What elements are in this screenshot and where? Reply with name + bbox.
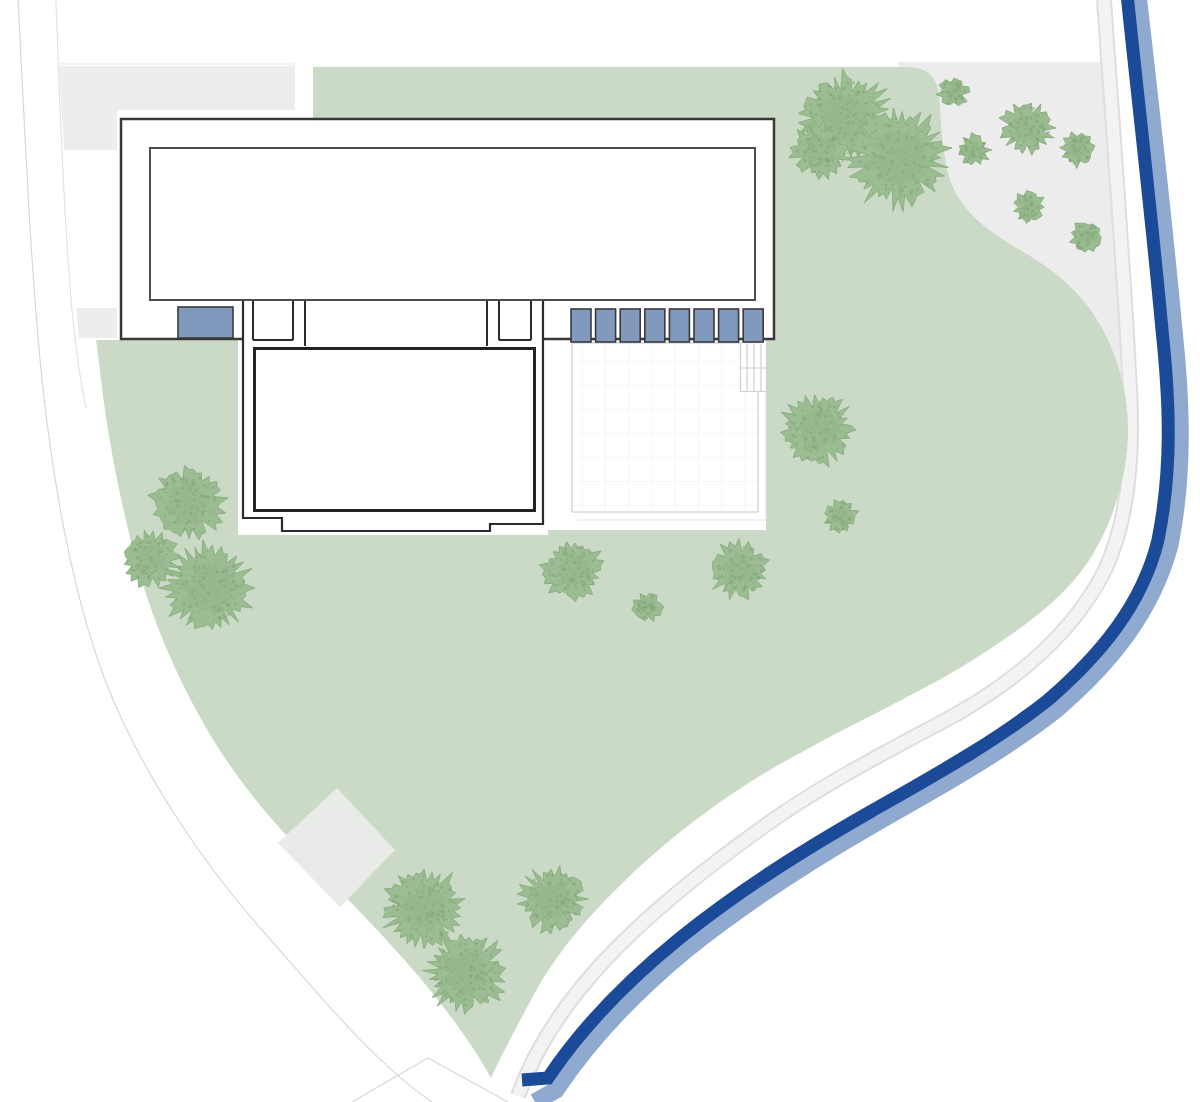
tree-foliage-speckle: [897, 139, 900, 142]
tree-foliage-speckle: [540, 884, 542, 886]
tree-foliage-speckle: [174, 598, 177, 601]
tree-foliage-speckle: [461, 988, 463, 990]
tree-foliage-speckle: [560, 874, 562, 876]
tree-foliage-speckle: [762, 567, 764, 569]
tree-foliage-speckle: [416, 908, 418, 910]
tree-foliage-speckle: [1017, 123, 1019, 125]
tree-foliage-speckle: [906, 136, 908, 138]
tree-foliage-speckle: [482, 964, 485, 967]
tree-foliage-speckle: [147, 577, 149, 579]
tree-foliage-speckle: [163, 500, 165, 502]
tree-foliage-speckle: [566, 911, 569, 914]
tree-foliage-speckle: [1085, 155, 1089, 159]
tree-foliage-speckle: [484, 984, 486, 986]
tree-foliage-speckle: [895, 175, 897, 177]
tree-foliage-speckle: [830, 129, 832, 131]
tree-foliage-speckle: [847, 81, 849, 83]
tree-foliage-speckle: [551, 924, 554, 927]
tree-foliage-speckle: [887, 124, 889, 126]
tree-foliage-speckle: [227, 603, 230, 606]
tree-foliage-speckle: [149, 551, 151, 553]
tree-foliage-speckle: [136, 567, 139, 570]
tree-foliage-speckle: [804, 151, 806, 153]
tree-foliage-speckle: [867, 167, 870, 170]
tree-foliage-speckle: [422, 875, 425, 878]
tree-foliage-speckle: [905, 123, 908, 126]
tree-foliage-speckle: [854, 118, 856, 120]
tree-foliage-speckle: [740, 560, 743, 563]
tree-foliage-speckle: [821, 130, 823, 132]
tree-foliage-speckle: [910, 194, 911, 195]
tree-foliage-speckle: [162, 547, 164, 549]
tree-foliage-speckle: [489, 953, 492, 956]
tree-foliage-speckle: [790, 438, 792, 440]
tree-foliage-speckle: [641, 606, 645, 610]
tree-foliage-speckle: [637, 604, 640, 607]
tree-foliage-speckle: [723, 557, 724, 558]
tree-foliage-speckle: [145, 566, 148, 569]
tree-foliage-speckle: [978, 161, 980, 163]
tree-foliage-speckle: [1090, 236, 1092, 238]
tree-foliage-speckle: [448, 950, 449, 951]
tree-foliage-speckle: [551, 879, 554, 882]
tree-foliage-speckle: [730, 569, 733, 572]
tree-foliage-speckle: [439, 910, 441, 912]
tree-foliage-speckle: [425, 906, 427, 908]
tree-foliage-speckle: [1022, 218, 1025, 221]
tree-foliage-speckle: [408, 891, 411, 894]
tree-foliage-speckle: [573, 883, 575, 885]
tree-foliage-speckle: [1028, 106, 1031, 109]
tree-foliage-speckle: [581, 581, 584, 584]
tree-foliage-speckle: [961, 98, 964, 101]
tree-foliage-speckle: [888, 168, 891, 171]
tree-foliage-speckle: [891, 147, 894, 150]
tree-foliage-speckle: [841, 424, 843, 426]
tree-foliage-speckle: [793, 414, 796, 417]
tree-foliage-speckle: [428, 889, 430, 891]
tree-foliage-speckle: [730, 558, 733, 561]
tree-foliage-speckle: [818, 171, 821, 174]
tree-foliage-speckle: [149, 556, 152, 559]
tree-foliage-speckle: [644, 606, 648, 610]
tree-foliage-speckle: [1031, 119, 1033, 121]
tree-foliage-speckle: [1075, 237, 1077, 239]
tree-foliage-speckle: [879, 174, 882, 177]
tree-foliage-speckle: [812, 400, 814, 402]
tree-foliage-speckle: [529, 886, 532, 889]
window-band-left: [178, 307, 233, 338]
tree-foliage-speckle: [809, 111, 813, 115]
tree-foliage-speckle: [833, 435, 837, 439]
tree-foliage-speckle: [825, 164, 828, 167]
tree-foliage-speckle: [193, 528, 195, 530]
tree-foliage-speckle: [162, 487, 165, 490]
tree-foliage-speckle: [817, 457, 820, 460]
tree-foliage-speckle: [921, 146, 923, 148]
tree-foliage-speckle: [883, 157, 885, 159]
tree-foliage-speckle: [863, 102, 866, 105]
tree-foliage-speckle: [830, 119, 832, 121]
tree-foliage-speckle: [884, 183, 887, 186]
tree-foliage-speckle: [839, 431, 841, 433]
tree-foliage-speckle: [828, 159, 831, 162]
tree-foliage-speckle: [829, 143, 831, 145]
tree-foliage-speckle: [941, 91, 944, 94]
tree-foliage-speckle: [189, 616, 192, 619]
tree-foliage-speckle: [832, 144, 835, 147]
tree-foliage-speckle: [559, 895, 561, 897]
tree-foliage-speckle: [575, 586, 577, 588]
tree-foliage-speckle: [234, 602, 237, 605]
tree-foliage-speckle: [407, 908, 409, 910]
tree-foliage-speckle: [589, 579, 591, 581]
tree-foliage-speckle: [533, 878, 536, 881]
tree-foliage-speckle: [165, 553, 168, 556]
tree-foliage-speckle: [802, 155, 805, 158]
tree-foliage-speckle: [965, 147, 968, 150]
tree-foliage-speckle: [178, 567, 182, 571]
tree-foliage-speckle: [583, 554, 586, 557]
tree-foliage-speckle: [809, 142, 812, 145]
tree-foliage-speckle: [846, 152, 848, 154]
tree-foliage-speckle: [463, 958, 465, 960]
tree-foliage-speckle: [969, 152, 971, 154]
site-plan-canvas: [0, 0, 1200, 1102]
tree-foliage-speckle: [451, 997, 454, 1000]
tree-foliage-speckle: [1027, 214, 1029, 216]
tree-foliage-speckle: [203, 585, 205, 587]
tree-foliage-speckle: [881, 173, 883, 175]
tree-foliage-speckle: [586, 572, 590, 576]
tree-foliage-speckle: [1016, 132, 1018, 134]
tree-foliage-speckle: [578, 567, 580, 569]
tree-foliage-speckle: [146, 554, 148, 556]
tree-foliage-speckle: [426, 915, 429, 918]
tree-foliage-speckle: [176, 581, 179, 584]
tree-foliage-speckle: [820, 129, 821, 130]
tree-foliage-speckle: [217, 593, 219, 595]
tree-foliage-speckle: [750, 548, 753, 551]
tree-foliage-speckle: [816, 93, 819, 96]
tree-foliage-speckle: [202, 572, 204, 574]
tree-foliage-speckle: [536, 914, 538, 916]
tree-foliage-speckle: [832, 431, 834, 433]
tree-foliage-speckle: [548, 889, 550, 891]
tree-foliage-speckle: [879, 155, 882, 158]
tree-foliage-speckle: [842, 528, 844, 530]
tree-foliage-speckle: [160, 538, 162, 540]
tree-foliage-speckle: [556, 551, 558, 553]
tree-foliage-speckle: [644, 595, 646, 597]
tree-foliage-speckle: [397, 905, 399, 907]
tree-foliage-speckle: [972, 150, 975, 153]
tree-foliage-speckle: [1079, 150, 1081, 152]
tree-foliage-speckle: [549, 574, 551, 576]
tree-foliage-speckle: [460, 952, 464, 956]
tree-foliage-speckle: [932, 159, 935, 162]
tree-foliage-speckle: [556, 905, 559, 908]
tree-foliage-speckle: [982, 143, 985, 146]
tree-foliage-speckle: [393, 905, 395, 907]
tree-foliage-speckle: [724, 584, 725, 585]
tree-foliage-speckle: [493, 983, 495, 985]
tree-foliage-speckle: [417, 902, 419, 904]
tree-foliage-speckle: [196, 559, 198, 561]
tree-foliage-speckle: [198, 488, 199, 489]
tree-foliage-speckle: [564, 548, 567, 551]
tree-foliage-speckle: [1012, 126, 1014, 128]
tree-foliage-speckle: [141, 570, 144, 573]
tree-foliage-speckle: [483, 972, 486, 975]
tree-foliage-speckle: [736, 564, 739, 567]
tree-foliage-speckle: [548, 873, 550, 875]
tree-foliage-speckle: [901, 150, 903, 152]
tree-foliage-speckle: [559, 559, 562, 562]
tree-foliage-speckle: [802, 133, 805, 136]
tree-foliage-speckle: [563, 565, 565, 567]
tree-foliage-speckle: [916, 188, 919, 191]
tree-foliage-speckle: [226, 574, 228, 576]
tree-foliage-speckle: [177, 500, 181, 504]
tree-foliage-speckle: [192, 505, 194, 507]
tree-foliage-speckle: [835, 515, 838, 518]
tree-foliage-speckle: [452, 970, 454, 972]
tree-foliage-speckle: [1084, 232, 1087, 235]
tree-foliage-speckle: [653, 608, 655, 610]
tree-foliage-speckle: [918, 165, 920, 167]
tree-foliage-speckle: [426, 898, 428, 900]
tree-foliage-speckle: [183, 512, 185, 514]
tree-foliage-speckle: [1025, 117, 1028, 120]
tree-foliage-speckle: [443, 990, 446, 993]
tree-foliage-speckle: [203, 596, 205, 598]
tree-foliage-speckle: [473, 969, 475, 971]
tree-foliage-speckle: [865, 102, 868, 105]
tree-foliage-speckle: [1080, 140, 1083, 143]
tree-foliage-speckle: [422, 879, 424, 881]
tree-foliage-speckle: [957, 94, 961, 98]
tree-foliage-speckle: [977, 147, 980, 150]
tree-foliage-speckle: [913, 161, 917, 165]
tree-foliage-speckle: [1068, 152, 1070, 154]
tree-foliage-speckle: [1025, 199, 1027, 201]
tree-foliage-speckle: [222, 570, 226, 574]
tree-foliage-speckle: [527, 898, 530, 901]
tree-foliage-speckle: [1032, 125, 1035, 128]
tree-foliage-speckle: [971, 155, 973, 157]
tree-foliage-speckle: [830, 525, 832, 527]
tree-foliage-speckle: [875, 124, 877, 126]
tree-foliage-speckle: [159, 552, 162, 555]
tree-foliage-speckle: [862, 90, 864, 92]
tree-foliage-speckle: [399, 924, 401, 926]
tree-foliage-speckle: [188, 569, 189, 570]
tree-foliage-speckle: [469, 981, 472, 984]
tree-foliage-speckle: [844, 132, 847, 135]
tree-foliage-speckle: [465, 965, 467, 967]
tree-foliage-speckle: [207, 495, 210, 498]
tree-foliage-speckle: [571, 907, 573, 909]
tree-foliage-speckle: [488, 969, 492, 973]
tree-foliage-speckle: [581, 571, 584, 574]
tree-foliage-speckle: [203, 565, 206, 568]
tree-foliage-speckle: [830, 94, 833, 97]
tree-foliage-speckle: [800, 422, 802, 424]
tree-foliage-speckle: [165, 506, 168, 509]
tree-foliage-speckle: [394, 924, 396, 926]
tree-foliage-speckle: [910, 189, 913, 192]
tree-foliage-speckle: [437, 917, 440, 920]
tree-foliage-speckle: [1035, 120, 1038, 123]
tree-foliage-speckle: [464, 943, 468, 947]
tree-foliage-speckle: [555, 565, 557, 567]
tree-foliage-speckle: [1019, 117, 1023, 121]
tree-foliage-speckle: [1047, 131, 1050, 134]
tree-foliage-speckle: [188, 513, 189, 514]
tree-foliage-speckle: [750, 557, 753, 560]
tree-foliage-speckle: [232, 580, 235, 583]
tree-foliage-speckle: [438, 958, 441, 961]
tree-foliage-speckle: [803, 418, 806, 421]
tree-foliage-speckle: [816, 165, 818, 167]
tree-foliage-speckle: [828, 164, 831, 167]
tree-foliage-speckle: [824, 415, 827, 418]
tree-foliage-speckle: [537, 895, 539, 897]
tree-foliage-speckle: [862, 130, 864, 132]
tree-foliage-speckle: [562, 901, 565, 904]
window-marker: [694, 309, 714, 342]
tree-foliage-speckle: [137, 543, 140, 546]
tree-foliage-speckle: [810, 115, 813, 118]
tree-foliage-speckle: [644, 618, 646, 620]
tree-foliage-speckle: [982, 153, 985, 156]
tree-foliage-speckle: [207, 520, 210, 523]
tree-foliage-speckle: [812, 149, 815, 152]
tree-foliage-speckle: [1011, 138, 1013, 140]
tree-foliage-speckle: [881, 144, 884, 147]
tree-foliage-speckle: [980, 151, 981, 152]
tree-foliage-speckle: [533, 893, 535, 895]
tree-foliage-speckle: [732, 568, 734, 570]
tree-foliage-speckle: [443, 918, 446, 921]
tree-foliage-speckle: [549, 911, 551, 913]
tree-foliage-speckle: [203, 505, 206, 508]
tree-foliage-speckle: [872, 153, 873, 154]
tree-foliage-speckle: [843, 513, 845, 515]
tree-foliage-speckle: [817, 445, 820, 448]
tree-foliage-speckle: [807, 138, 809, 140]
tree-foliage-speckle: [232, 564, 236, 568]
tree-foliage-speckle: [925, 179, 928, 182]
tree-foliage-speckle: [567, 584, 570, 587]
tree-foliage-speckle: [469, 974, 472, 977]
tree-foliage-speckle: [553, 576, 554, 577]
tree-foliage-speckle: [887, 180, 890, 183]
tree-foliage-speckle: [817, 405, 820, 408]
tree-foliage-speckle: [837, 448, 839, 450]
tree-foliage-speckle: [884, 166, 886, 168]
tree-foliage-speckle: [854, 103, 856, 105]
tree-foliage-speckle: [398, 929, 401, 932]
tree-foliage-speckle: [841, 514, 843, 516]
tree-foliage-speckle: [812, 164, 816, 168]
tree-foliage-speckle: [859, 160, 862, 163]
tree-foliage-speckle: [472, 960, 474, 962]
tree-foliage-speckle: [969, 158, 971, 160]
tree-foliage-speckle: [835, 526, 838, 529]
window-marker: [620, 309, 640, 342]
tree-foliage-speckle: [555, 576, 557, 578]
tree-foliage-speckle: [817, 103, 821, 107]
tree-foliage-speckle: [162, 550, 165, 553]
tree-foliage-speckle: [1028, 219, 1031, 222]
tree-foliage-speckle: [222, 601, 224, 603]
tree-foliage-speckle: [831, 158, 833, 160]
tree-foliage-speckle: [547, 881, 551, 885]
tree-foliage-speckle: [164, 515, 167, 518]
tree-foliage-speckle: [177, 505, 180, 508]
tree-foliage-speckle: [421, 891, 423, 893]
tree-foliage-speckle: [841, 107, 844, 110]
tree-foliage-speckle: [1085, 139, 1087, 141]
tree-foliage-speckle: [549, 570, 552, 573]
tree-foliage-speckle: [814, 113, 817, 116]
window-marker: [571, 309, 591, 342]
tree-foliage-speckle: [897, 130, 900, 133]
tree-foliage-speckle: [1044, 137, 1046, 139]
tree-foliage-speckle: [177, 592, 179, 594]
tree-foliage-speckle: [197, 611, 199, 613]
tree-foliage-speckle: [1042, 112, 1044, 114]
tree-foliage-speckle: [462, 1004, 464, 1006]
tree-foliage-speckle: [1064, 144, 1067, 147]
tree-foliage-speckle: [900, 194, 903, 197]
tree-foliage-speckle: [184, 511, 185, 512]
tree-foliage-speckle: [448, 996, 450, 998]
tree-foliage-speckle: [426, 918, 428, 920]
tree-foliage-speckle: [891, 184, 894, 187]
tree-foliage-speckle: [494, 962, 497, 965]
tree-foliage-speckle: [582, 584, 585, 587]
tree-foliage-speckle: [943, 99, 945, 101]
tree-foliage-speckle: [932, 148, 934, 150]
building-inner-wall: [150, 148, 755, 300]
tree-foliage-speckle: [399, 896, 401, 898]
tree-foliage-speckle: [641, 617, 644, 620]
tree-foliage-speckle: [749, 577, 753, 581]
tree-foliage-speckle: [476, 953, 479, 956]
tree-foliage-speckle: [656, 607, 658, 609]
tree-foliage-speckle: [849, 151, 852, 154]
tree-foliage-speckle: [740, 567, 743, 570]
tree-foliage-speckle: [750, 589, 753, 592]
tree-foliage-speckle: [806, 167, 808, 169]
tree-foliage-speckle: [464, 1004, 467, 1007]
terrace: [572, 343, 767, 520]
tree-foliage-speckle: [638, 606, 641, 609]
tree-foliage-speckle: [189, 485, 191, 487]
tree-foliage-speckle: [846, 432, 848, 434]
tree-foliage-speckle: [742, 546, 744, 548]
tree-foliage-speckle: [488, 979, 490, 981]
tree-foliage-speckle: [592, 582, 594, 584]
tree-foliage-speckle: [555, 922, 557, 924]
tree-foliage-speckle: [924, 142, 928, 146]
tree-foliage-speckle: [200, 502, 202, 504]
tree-foliage-speckle: [410, 935, 413, 938]
tree-foliage-speckle: [194, 564, 196, 566]
